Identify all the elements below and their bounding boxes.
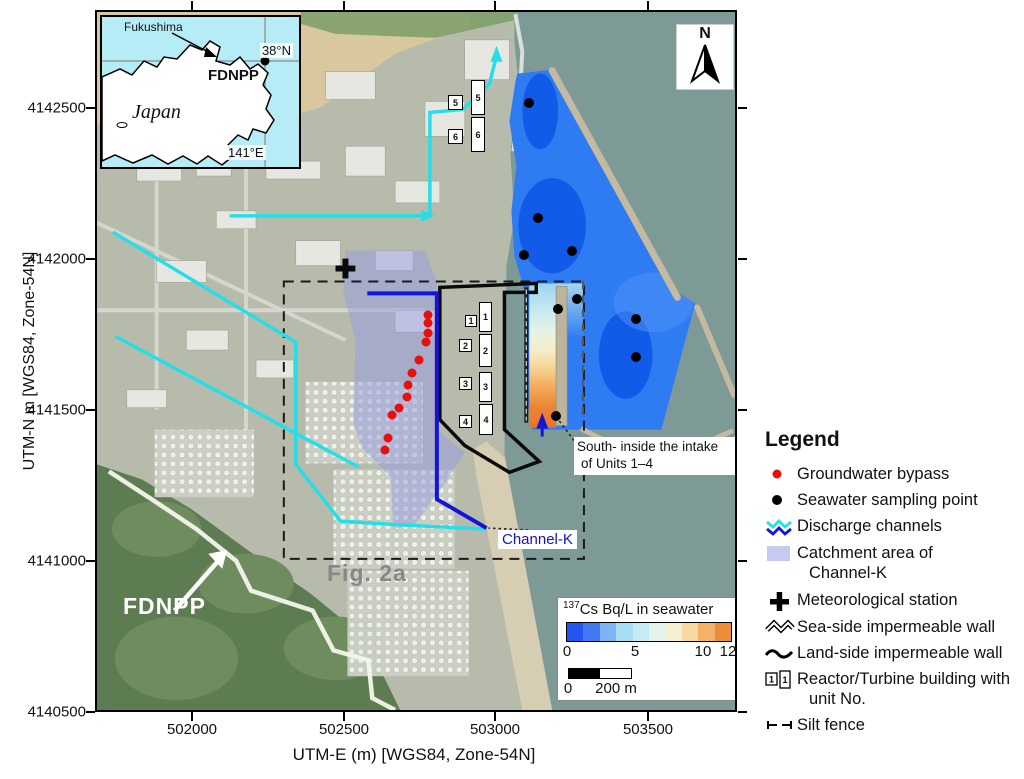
y-tick-mark xyxy=(738,711,747,713)
unit-building: 2 xyxy=(479,334,492,367)
colorbar-segment xyxy=(698,623,714,641)
groundwater-bypass-point xyxy=(384,434,393,443)
y-tick-mark xyxy=(738,409,747,411)
colorbar-segment xyxy=(633,623,649,641)
x-tick-mark xyxy=(647,1,649,10)
legend-item-label: Silt fence xyxy=(797,715,865,735)
colorbar-segment xyxy=(665,623,681,641)
land-wall-icon xyxy=(763,643,797,662)
legend-panel: Legend Groundwater bypassSeawater sampli… xyxy=(763,428,1023,741)
sea-wall-icon xyxy=(763,617,797,636)
legend-item: Meteorological station xyxy=(763,590,1023,611)
legend-item: Silt fence xyxy=(763,715,1023,735)
seawater-sampling-point xyxy=(553,304,563,314)
groundwater-bypass-point xyxy=(404,381,413,390)
x-tick-label: 503500 xyxy=(623,721,673,738)
fukushima-label: Fukushima xyxy=(124,20,183,34)
north-arrow: N xyxy=(677,25,733,89)
groundwater-bypass-point xyxy=(424,319,433,328)
colorbar-segment xyxy=(616,623,632,641)
legend-item: 11Reactor/Turbine building withunit No. xyxy=(763,669,1023,709)
catchment-icon xyxy=(763,543,797,564)
x-tick-label: 503000 xyxy=(470,721,520,738)
x-tick-mark xyxy=(494,1,496,10)
groundwater-bypass-point xyxy=(381,446,390,455)
x-tick-label: 502000 xyxy=(167,721,217,738)
legend-item-label: Meteorological station xyxy=(797,590,958,610)
legend-item-label: Groundwater bypass xyxy=(797,464,949,484)
met-station-icon xyxy=(763,590,797,611)
x-tick-mark xyxy=(343,712,345,721)
satellite-map: Fukushima 38°N FDNPP Japan 141°E N 11223… xyxy=(95,10,737,712)
x-tick-mark xyxy=(343,1,345,10)
unit-building: 6 xyxy=(448,129,463,144)
colorbar-gradient xyxy=(566,622,732,642)
north-label: N xyxy=(677,25,733,43)
colorbar-tick-label: 0 xyxy=(563,643,571,660)
black-dot-icon xyxy=(763,490,797,509)
fdnpp-site-label: FDNPP xyxy=(123,593,206,620)
scale-start-label: 0 xyxy=(564,680,572,697)
fig2a-label: Fig. 2a xyxy=(327,560,407,587)
channels-icon xyxy=(763,516,797,537)
groundwater-bypass-point xyxy=(415,356,424,365)
x-tick-mark xyxy=(191,1,193,10)
figure-page: UTM-N m [WGS84, Zone-54N] UTM-E (m) [WGS… xyxy=(0,0,1024,779)
japan-label: Japan xyxy=(132,101,181,124)
unit-building: 2 xyxy=(459,339,472,352)
unit-building: 3 xyxy=(479,372,492,402)
colorbar: 137Cs Bq/L in seawater 051012 0 200 m xyxy=(557,597,737,701)
scale-bar xyxy=(568,668,632,679)
unit-building: 5 xyxy=(471,80,485,115)
legend-item-label: Discharge channels xyxy=(797,516,942,536)
x-tick-mark xyxy=(191,712,193,721)
legend-items: Groundwater bypassSeawater sampling poin… xyxy=(763,464,1023,735)
building-icon: 11 xyxy=(763,669,797,690)
seawater-sampling-point xyxy=(631,352,641,362)
colorbar-tick-label: 12 xyxy=(720,643,737,660)
legend-item: Catchment area ofChannel-K xyxy=(763,543,1023,583)
seawater-sampling-point xyxy=(567,246,577,256)
colorbar-segment xyxy=(715,623,731,641)
inset-locator-map: Fukushima 38°N FDNPP Japan 141°E xyxy=(100,15,301,169)
unit-building: 4 xyxy=(459,415,472,428)
y-tick-mark xyxy=(86,258,95,260)
legend-item: Seawater sampling point xyxy=(763,490,1023,510)
longitude-label: 141°E xyxy=(226,145,266,160)
inset-fdnpp-label: FDNPP xyxy=(208,67,259,84)
unit-building: 6 xyxy=(471,117,485,152)
y-tick-label: 4141500 xyxy=(8,402,86,419)
y-tick-mark xyxy=(738,107,747,109)
svg-text:1: 1 xyxy=(782,675,787,685)
south-intake-label: South- inside the intake of Units 1–4 xyxy=(574,437,737,475)
y-tick-label: 4142000 xyxy=(8,251,86,268)
unit-building: 4 xyxy=(479,404,493,435)
y-tick-mark xyxy=(86,409,95,411)
groundwater-bypass-point xyxy=(388,411,397,420)
x-axis-title: UTM-E (m) [WGS84, Zone-54N] xyxy=(164,745,664,765)
colorbar-segment xyxy=(649,623,665,641)
legend-item-label: Land-side impermeable wall xyxy=(797,643,1002,663)
red-dot-icon xyxy=(763,464,797,483)
groundwater-bypass-point xyxy=(408,369,417,378)
north-arrow-glyph xyxy=(688,43,722,85)
x-tick-label: 502500 xyxy=(319,721,369,738)
y-tick-mark xyxy=(86,107,95,109)
seawater-sampling-point xyxy=(551,411,561,421)
legend-item: Land-side impermeable wall xyxy=(763,643,1023,663)
legend-item: Discharge channels xyxy=(763,516,1023,537)
x-tick-mark xyxy=(494,712,496,721)
seawater-sampling-point xyxy=(572,294,582,304)
groundwater-bypass-point xyxy=(395,404,404,413)
y-tick-mark xyxy=(738,258,747,260)
intake-cs-gradient xyxy=(529,283,556,427)
groundwater-bypass-point xyxy=(422,338,431,347)
seawater-sampling-point xyxy=(631,314,641,324)
legend-item-label: Seawater sampling point xyxy=(797,490,978,510)
legend-item-label: Reactor/Turbine building withunit No. xyxy=(797,669,1010,709)
legend-item-label: Sea-side impermeable wall xyxy=(797,617,995,637)
colorbar-tick-label: 5 xyxy=(631,643,639,660)
x-tick-mark xyxy=(647,712,649,721)
y-tick-mark xyxy=(738,560,747,562)
latitude-label: 38°N xyxy=(260,43,293,58)
channel-k-label: Channel-K xyxy=(498,530,577,549)
colorbar-segment xyxy=(600,623,616,641)
groundwater-bypass-point xyxy=(424,329,433,338)
y-tick-label: 4142500 xyxy=(8,100,86,117)
colorbar-segment xyxy=(567,623,583,641)
unit-building: 1 xyxy=(479,302,492,332)
colorbar-segment xyxy=(583,623,599,641)
silt-fence-icon xyxy=(763,715,797,734)
colorbar-segment xyxy=(682,623,698,641)
seawater-sampling-point xyxy=(524,98,534,108)
y-tick-mark xyxy=(86,711,95,713)
unit-building: 1 xyxy=(465,315,477,327)
scale-end-label: 200 m xyxy=(595,680,637,697)
seawater-sampling-point xyxy=(533,213,543,223)
y-tick-label: 4140500 xyxy=(8,704,86,721)
svg-text:1: 1 xyxy=(769,674,774,684)
legend-item-label: Catchment area ofChannel-K xyxy=(797,543,933,583)
legend-title: Legend xyxy=(765,428,1023,452)
colorbar-tick-label: 10 xyxy=(695,643,712,660)
y-tick-mark xyxy=(86,560,95,562)
inset-graphics xyxy=(102,17,299,167)
legend-item: Groundwater bypass xyxy=(763,464,1023,484)
legend-item: Sea-side impermeable wall xyxy=(763,617,1023,637)
colorbar-title: 137Cs Bq/L in seawater xyxy=(563,600,713,618)
groundwater-bypass-point xyxy=(403,393,412,402)
unit-building: 3 xyxy=(459,377,472,390)
y-tick-label: 4141000 xyxy=(8,553,86,570)
seawater-sampling-point xyxy=(519,250,529,260)
unit-building: 5 xyxy=(448,95,463,110)
